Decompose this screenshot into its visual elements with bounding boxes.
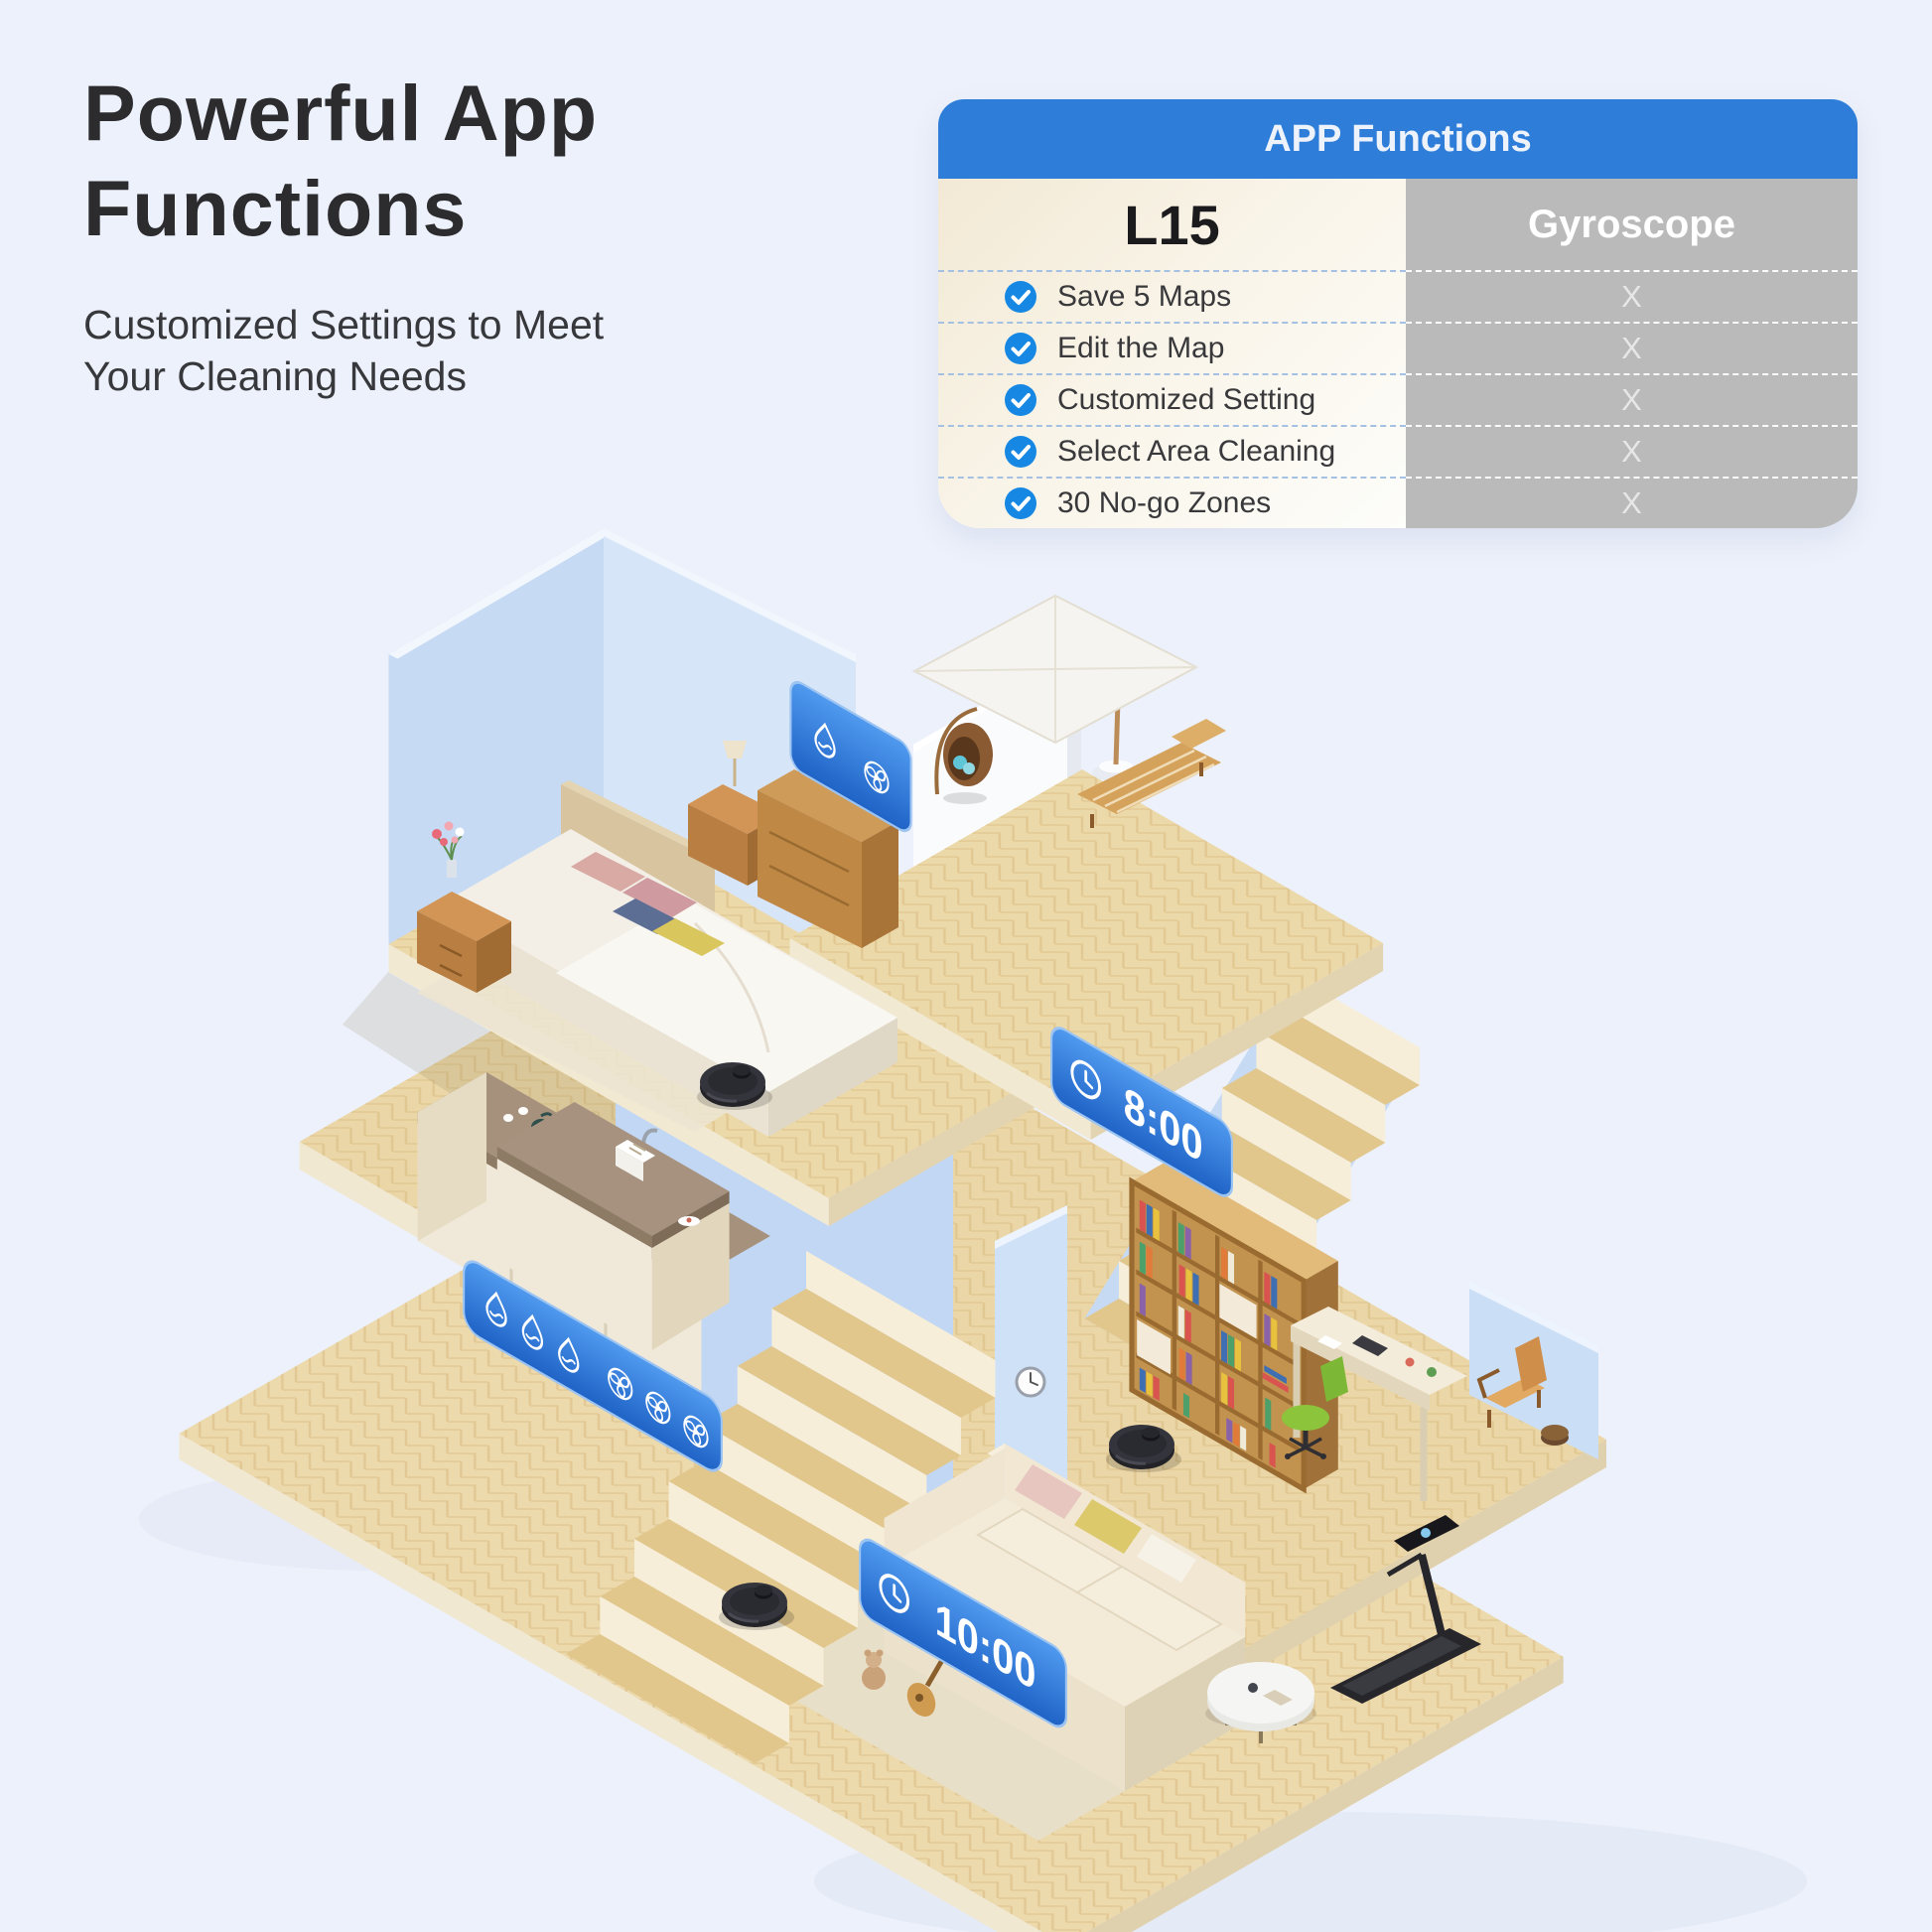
x-mark: X <box>1406 477 1858 528</box>
wall-clock <box>1017 1368 1044 1396</box>
table-row: 30 No-go Zones <box>938 477 1406 528</box>
table-header: APP Functions <box>938 99 1858 179</box>
competitor-name: Gyroscope <box>1406 179 1858 270</box>
product-name: L15 <box>938 179 1406 270</box>
table-row: Customized Setting <box>938 373 1406 425</box>
x-mark: X <box>1406 373 1858 425</box>
x-mark: X <box>1406 425 1858 477</box>
page-subtitle: Customized Settings to Meet Your Cleanin… <box>83 299 604 402</box>
page-title: Powerful App Functions <box>83 66 604 257</box>
check-icon <box>1004 383 1037 417</box>
table-row: Select Area Cleaning <box>938 425 1406 477</box>
comparison-table: APP Functions L15 Save 5 Maps Edit the M… <box>938 99 1858 528</box>
x-mark: X <box>1406 270 1858 322</box>
page: 8:00 10:00 Powerful App Functions Custom… <box>0 0 1932 1932</box>
headline: Powerful App Functions Customized Settin… <box>83 66 604 402</box>
check-icon <box>1004 435 1037 469</box>
column-l15: L15 Save 5 Maps Edit the Map Customized … <box>938 179 1406 528</box>
table-row: Edit the Map <box>938 322 1406 373</box>
column-gyroscope: Gyroscope X X X X X <box>1406 179 1858 528</box>
check-icon <box>1004 486 1037 520</box>
check-icon <box>1004 280 1037 314</box>
table-row: Save 5 Maps <box>938 270 1406 322</box>
x-mark: X <box>1406 322 1858 373</box>
check-icon <box>1004 332 1037 365</box>
